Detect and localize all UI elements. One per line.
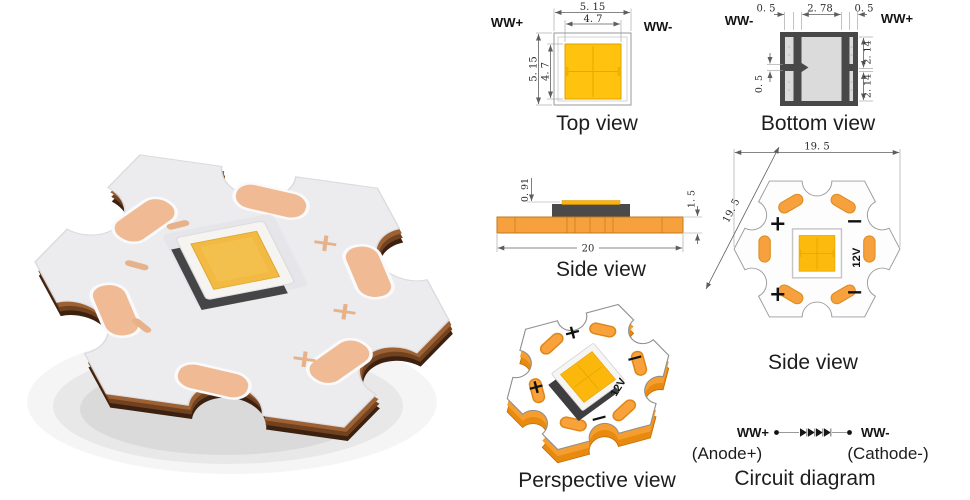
star-plus-mark: + bbox=[769, 212, 787, 236]
star-view-title: Side view bbox=[768, 351, 859, 374]
circuit-diagram: WW+ WW- (Anode+) (Cathode-) Circuit diag… bbox=[692, 425, 929, 490]
star-minus-mark: − bbox=[846, 209, 864, 233]
circuit-anode-terminal bbox=[774, 430, 779, 435]
star-minus-mark: − bbox=[846, 280, 864, 304]
circuit-diagram-title: Circuit diagram bbox=[734, 467, 875, 490]
bottom-view-title: Bottom view bbox=[761, 112, 876, 135]
dim-bottom-right-pad: 0. 5 bbox=[854, 4, 873, 15]
dim-bottom-left-pad: 0. 5 bbox=[756, 4, 775, 15]
circuit-anode-sublabel: (Anode+) bbox=[692, 444, 762, 463]
dim-top-inner-height: 4. 7 bbox=[541, 62, 552, 81]
dim-bottom-right-top-seg: 2. 14 bbox=[863, 40, 874, 64]
dim-side-board-width: 20 bbox=[582, 244, 595, 255]
circuit-cathode-sublabel: (Cathode-) bbox=[847, 444, 928, 463]
circuit-anode-label: WW+ bbox=[737, 425, 770, 440]
dim-side-board-thickness: 1. 5 bbox=[687, 190, 698, 208]
perspective-view: + + − − 12V Perspective view bbox=[488, 295, 688, 492]
top-view-title: Top view bbox=[556, 112, 639, 135]
star-plus-mark: + bbox=[769, 282, 787, 306]
top-view: 5. 15 4. 7 5. 15 4. 7 WW+ WW- Top view bbox=[491, 2, 672, 135]
spec-sheet: + + + bbox=[0, 0, 970, 500]
side-view-title: Side view bbox=[556, 258, 647, 281]
bottom-view-cathode-label: WW- bbox=[725, 13, 754, 28]
dim-bottom-left-gap: 0. 5 bbox=[754, 75, 765, 93]
side-view-phosphor bbox=[562, 201, 620, 205]
diagram-canvas: + + + bbox=[0, 0, 970, 500]
top-view-cathode-label: WW- bbox=[644, 19, 673, 34]
side-view-package bbox=[552, 204, 630, 218]
photo-plus-mark: + bbox=[309, 227, 342, 259]
bottom-view-anode-label: WW+ bbox=[881, 11, 914, 26]
dim-bottom-right-bottom-seg: 2. 14 bbox=[863, 74, 874, 98]
bottom-view: 0. 5 2. 78 0. 5 2. 14 2. 14 0. 5 WW- WW+… bbox=[725, 4, 914, 136]
product-photo: + + + bbox=[16, 142, 471, 474]
photo-plus-mark: + bbox=[288, 343, 321, 375]
perspective-view-title: Perspective view bbox=[518, 469, 676, 492]
dim-top-inner-width: 4. 7 bbox=[583, 14, 602, 25]
dim-star-width: 19. 5 bbox=[804, 142, 829, 153]
dim-bottom-center: 2. 78 bbox=[807, 4, 832, 15]
star-led-package bbox=[793, 229, 842, 278]
side-view: 0. 91 1. 5 20 Side view bbox=[497, 178, 702, 281]
diode-symbols bbox=[800, 428, 831, 436]
dim-star-diagonal: 19. 5 bbox=[721, 197, 742, 225]
star-view: + + − − 12V 19. 5 19. 5 Side view bbox=[706, 142, 900, 375]
dim-top-outer-width: 5. 15 bbox=[580, 2, 605, 13]
circuit-cathode-terminal bbox=[847, 430, 852, 435]
photo-plus-mark: + bbox=[328, 296, 361, 328]
dim-side-emitter-height: 0. 91 bbox=[520, 178, 531, 202]
circuit-cathode-label: WW- bbox=[861, 425, 890, 440]
star-voltage-label: 12V bbox=[851, 247, 863, 268]
dim-top-outer-height: 5. 15 bbox=[529, 56, 540, 81]
top-view-anode-label: WW+ bbox=[491, 15, 524, 30]
